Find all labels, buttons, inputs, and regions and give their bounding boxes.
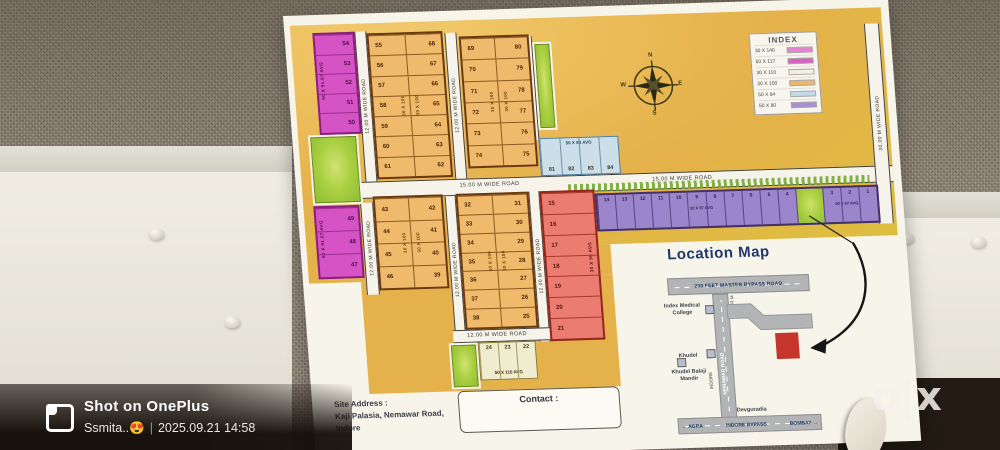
- plot-73: 73: [467, 124, 501, 145]
- plot-row: 3429: [460, 231, 530, 252]
- plot-28: 28: [496, 251, 532, 270]
- poster-inner: 12.00 M WIDE ROAD 12.00 M WIDE ROAD 12.0…: [283, 3, 921, 450]
- plot-row: 3726: [465, 288, 535, 309]
- arrowhead: [810, 339, 828, 355]
- plot-row: 3330: [459, 213, 529, 234]
- pointer-arrow: [816, 243, 870, 344]
- road-label: 12.00 M WIDE ROAD: [451, 78, 461, 133]
- plot-row: 3825: [466, 307, 536, 328]
- plot-47: 47: [319, 253, 363, 277]
- plot-row: 3528: [462, 250, 532, 271]
- plot-layout-poster: 12.00 M WIDE ROAD 12.00 M WIDE ROAD 12.0…: [283, 0, 921, 450]
- plot-38: 38: [466, 309, 501, 328]
- plot-80: 80: [493, 37, 528, 58]
- green-garden-plot-1: [310, 136, 361, 203]
- plot-35: 35: [462, 252, 497, 271]
- plot-36: 36: [463, 271, 498, 290]
- plot-83: 83: [578, 137, 600, 174]
- road-label: 15.00 M WIDE ROAD: [459, 181, 519, 189]
- plot-50: 50: [320, 112, 359, 133]
- green-garden-plot-2: [451, 345, 479, 388]
- plot-82: 82: [559, 138, 581, 175]
- plot-54: 54: [314, 34, 353, 55]
- watermark-divider: |: [150, 421, 153, 435]
- plot-row: 5667: [370, 53, 443, 76]
- plot-19: 19: [548, 275, 600, 297]
- plot-72: 72: [466, 102, 500, 123]
- plot-52: 52: [317, 73, 356, 94]
- plot-27: 27: [497, 270, 533, 289]
- compass-star: [624, 58, 682, 114]
- plot-20: 20: [549, 296, 601, 318]
- compass-rose: N E S W: [624, 58, 682, 114]
- plot-row: 4639: [380, 264, 448, 289]
- orange-block-b: 30 X 100 30 X 100 6980707971787277737674…: [459, 34, 539, 168]
- plot-row: 7376: [467, 122, 534, 145]
- plot-31: 31: [492, 195, 528, 214]
- plot-64: 64: [410, 115, 448, 135]
- wall-bump: [970, 236, 986, 248]
- plot-37: 37: [465, 290, 500, 309]
- plot-18: 18: [546, 254, 598, 276]
- plot-45: 45: [378, 243, 412, 266]
- plot-67: 67: [406, 54, 444, 74]
- olx-logo: o|x: [872, 374, 943, 420]
- plot-77: 77: [498, 101, 533, 122]
- wall-bump: [148, 228, 164, 240]
- plot-row: 3231: [458, 194, 528, 215]
- plot-30: 30: [493, 214, 529, 233]
- index-rows: 30 X 14050 X 11730 X 11030 X 10050 X 845…: [754, 43, 817, 111]
- plot-row: 6063: [376, 134, 449, 157]
- shot-on-oneplus-watermark: Shot on OnePlus: [84, 398, 209, 415]
- plot-75: 75: [501, 144, 536, 165]
- oneplus-logo-icon: [46, 404, 74, 432]
- plot-55: 55: [369, 35, 406, 55]
- branch-road: [727, 302, 813, 331]
- pink-block-mid: 50 X 91.67 AVG 494847: [313, 205, 364, 279]
- plot-68: 68: [404, 34, 442, 54]
- plot-17: 17: [545, 233, 597, 255]
- plot-row: 7277: [466, 100, 533, 123]
- plot-row: 7178: [464, 79, 531, 102]
- plot-69: 69: [461, 38, 495, 59]
- plot-71: 71: [464, 81, 498, 102]
- plot-row: 5865: [373, 94, 446, 117]
- pink-block-top: 50 X 91.67 AVG 5453525150: [312, 32, 362, 135]
- compass-s: S: [652, 110, 656, 116]
- index-row: 50 X 80: [759, 98, 818, 111]
- contact-label: Contact :: [459, 391, 619, 406]
- plot-row: 7079: [462, 58, 529, 81]
- plot-39: 39: [412, 265, 447, 288]
- orange-block-a: 30 X 100 30 X 100 5568566757665865596460…: [366, 31, 453, 179]
- plot-40: 40: [411, 242, 446, 265]
- index-legend: INDEX 30 X 14050 X 11730 X 11030 X 10050…: [749, 31, 823, 115]
- plot-81: 81: [539, 139, 561, 176]
- plot-66: 66: [407, 75, 445, 95]
- plot-row: 5568: [368, 33, 441, 56]
- road-label: 12.00 M WIDE ROAD: [365, 221, 375, 276]
- plot-84: 84: [598, 137, 620, 174]
- plot-49: 49: [315, 207, 359, 231]
- plot-44: 44: [377, 221, 411, 244]
- plot-42: 42: [407, 197, 442, 220]
- plot-58: 58: [373, 96, 410, 116]
- plot-76: 76: [500, 123, 535, 144]
- agra-label: ← AGRA: [682, 424, 703, 431]
- plot-74: 74: [469, 145, 503, 166]
- plot-56: 56: [370, 56, 407, 76]
- plot-70: 70: [462, 60, 496, 81]
- road-label: 12.00 M WIDE ROAD: [361, 79, 371, 134]
- plot-62: 62: [413, 156, 451, 176]
- leader-line: [809, 215, 853, 245]
- watermark-byline: Ssmita..😍|2025.09.21 14:58: [84, 421, 255, 436]
- plot-53: 53: [316, 53, 355, 74]
- plot-60: 60: [376, 137, 413, 157]
- site-marker-red-square: [775, 332, 800, 359]
- plot-row: 6980: [461, 36, 528, 59]
- plot-63: 63: [412, 135, 450, 155]
- plot-15: 15: [541, 192, 593, 214]
- compass-w: W: [620, 82, 626, 88]
- plot-row: 3627: [463, 269, 533, 290]
- plot-25: 25: [500, 308, 536, 327]
- road-label: 12.00 M WIDE ROAD: [467, 331, 527, 339]
- blue-block: 50 X 84 AVG 81828384: [538, 136, 621, 176]
- plot-row: 5766: [372, 74, 445, 97]
- plot-row: 4540: [378, 241, 446, 266]
- plot-21: 21: [551, 317, 603, 339]
- bombay-label: BOMBAY →: [790, 420, 818, 427]
- plot-row: 4441: [376, 219, 444, 244]
- plot-26: 26: [499, 289, 535, 308]
- plot-row: 6162: [378, 155, 451, 178]
- cream-block: 50 X 110 AVG 242322: [478, 341, 539, 381]
- plot-34: 34: [460, 233, 495, 252]
- plot-79: 79: [495, 59, 530, 80]
- road-label: 30.00 M WIDE ROAD: [874, 96, 884, 151]
- plot-29: 29: [494, 232, 530, 251]
- wall-bump: [224, 316, 240, 328]
- plot-65: 65: [409, 95, 447, 115]
- plot-48: 48: [317, 230, 361, 254]
- contact-box: Contact :: [457, 386, 622, 433]
- plot-43: 43: [375, 198, 409, 221]
- compass-n: N: [648, 52, 653, 58]
- plot-33: 33: [459, 215, 494, 234]
- indore-bypass-label: INDORE BYPASS: [726, 422, 767, 429]
- orange-block-c: 30 X 100 30 X 100 4342444145404639: [373, 194, 450, 290]
- plot-59: 59: [375, 116, 412, 136]
- plot-row: 7475: [469, 143, 536, 166]
- plot-46: 46: [380, 266, 414, 289]
- watermark-datetime: 2025.09.21 14:58: [158, 421, 255, 435]
- orange-block-d: 30 X 100 30 X 100 3231333034293528362737…: [455, 192, 538, 330]
- photo-stage: 12.00 M WIDE ROAD 12.00 M WIDE ROAD 12.0…: [0, 0, 1000, 450]
- plot-78: 78: [496, 80, 531, 101]
- plot-41: 41: [409, 220, 444, 243]
- plot-57: 57: [372, 76, 409, 96]
- plot-row: 4342: [375, 196, 443, 221]
- plot-32: 32: [458, 196, 493, 215]
- compass-e: E: [678, 81, 682, 87]
- watermark-author: Ssmita..😍: [84, 421, 145, 435]
- plot-row: 5964: [375, 114, 448, 137]
- plot-16: 16: [543, 212, 595, 234]
- plot-22: 22: [516, 342, 537, 379]
- plot-51: 51: [319, 93, 358, 114]
- plot-61: 61: [378, 157, 415, 177]
